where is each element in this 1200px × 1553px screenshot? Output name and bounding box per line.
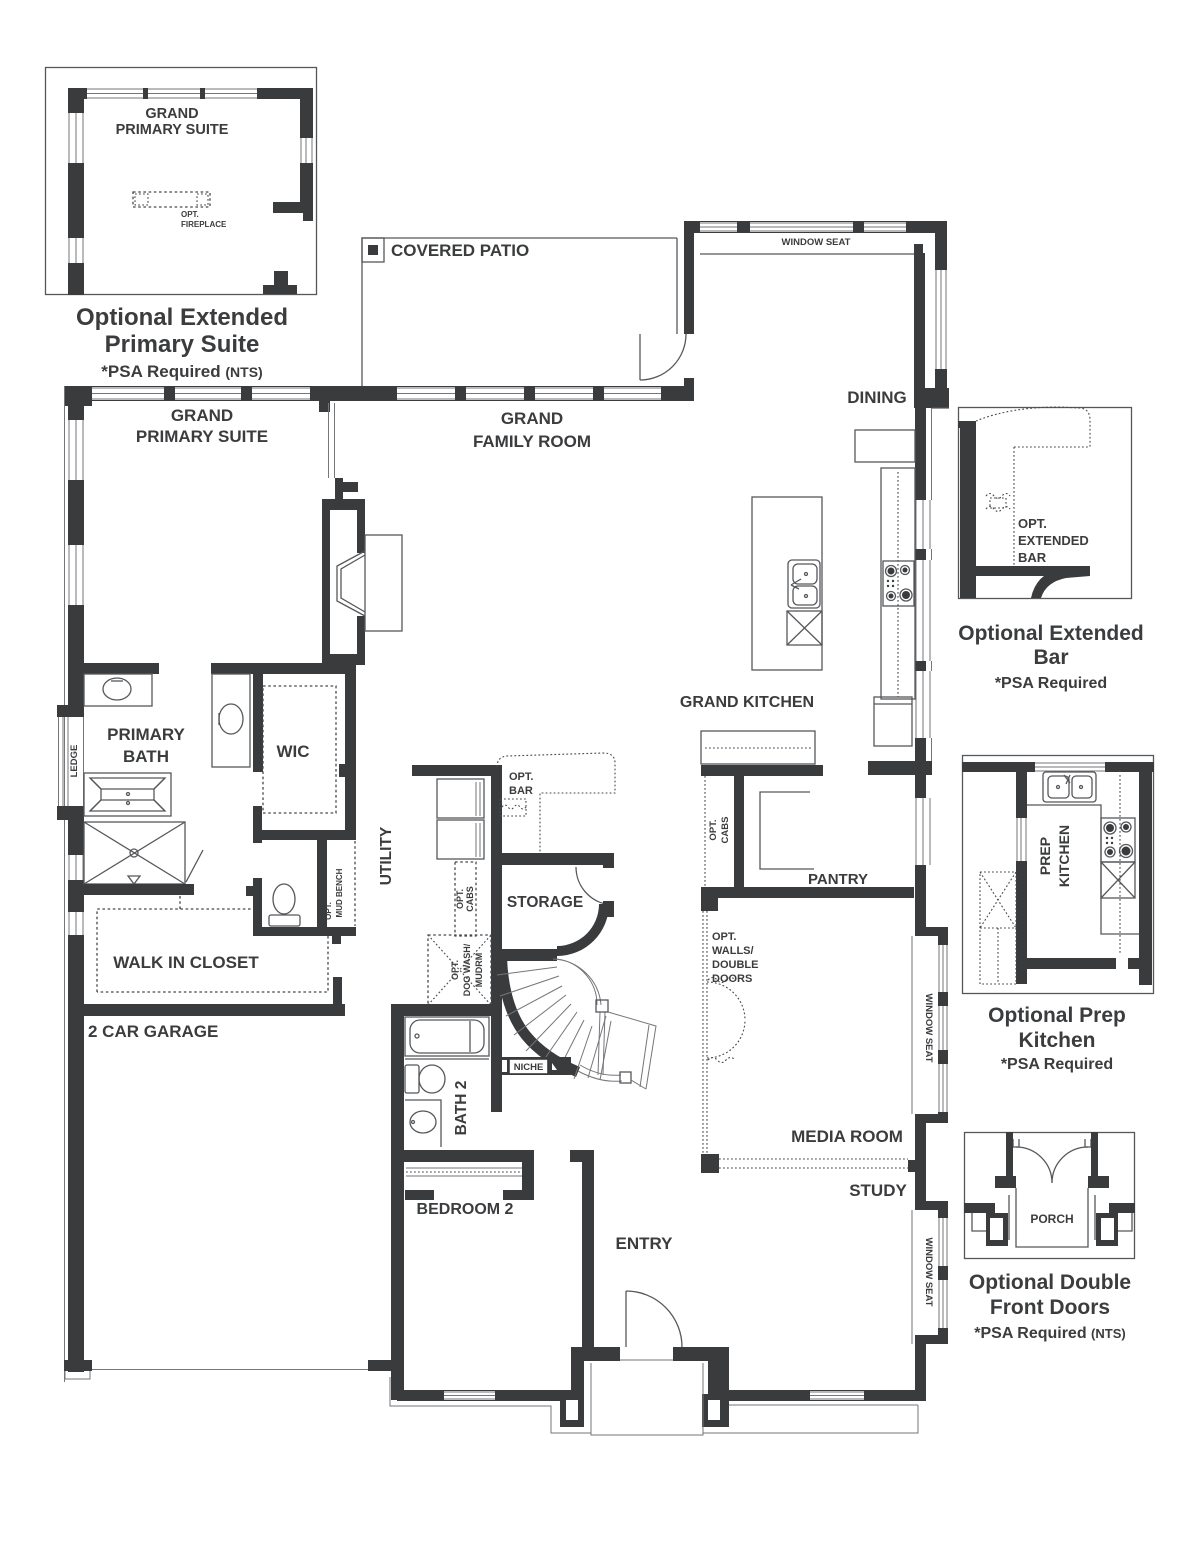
svg-text:Front Doors: Front Doors [990,1296,1110,1319]
svg-text:BAR: BAR [509,785,533,797]
svg-text:COVERED PATIO: COVERED PATIO [391,241,529,260]
svg-text:OPT.: OPT. [708,819,719,840]
svg-text:WINDOW SEAT: WINDOW SEAT [782,237,851,248]
svg-text:BEDROOM 2: BEDROOM 2 [417,1201,514,1218]
svg-text:Kitchen: Kitchen [1018,1029,1095,1052]
svg-text:FAMILY ROOM: FAMILY ROOM [473,432,591,451]
svg-text:STORAGE: STORAGE [507,894,583,911]
svg-text:UTILITY: UTILITY [378,826,395,885]
svg-text:OPT.: OPT. [455,889,465,909]
svg-text:DOG WASH/: DOG WASH/ [462,943,472,996]
svg-text:OPT.: OPT. [509,771,533,783]
svg-text:*PSA Required: *PSA Required [1001,1056,1113,1073]
svg-text:MUD BENCH: MUD BENCH [335,868,344,917]
svg-text:Primary Suite: Primary Suite [105,331,260,358]
svg-text:MUDRM: MUDRM [474,953,484,988]
svg-text:PANTRY: PANTRY [808,871,868,888]
svg-text:CABS: CABS [465,886,475,912]
svg-text:DOORS: DOORS [712,973,752,985]
svg-text:2 CAR GARAGE: 2 CAR GARAGE [88,1022,218,1041]
svg-text:GRAND: GRAND [501,409,563,428]
svg-text:WIC: WIC [276,742,309,761]
svg-text:PORCH: PORCH [1030,1212,1073,1226]
svg-text:GRAND KITCHEN: GRAND KITCHEN [680,694,814,711]
svg-text:NICHE: NICHE [514,1062,544,1073]
svg-text:WINDOW SEAT: WINDOW SEAT [923,1238,934,1307]
svg-text:*PSA Required (NTS): *PSA Required (NTS) [101,362,262,381]
svg-text:PRIMARY: PRIMARY [107,725,185,744]
svg-text:WINDOW SEAT: WINDOW SEAT [923,994,934,1063]
svg-text:GRAND: GRAND [145,106,198,122]
svg-text:CABS: CABS [720,817,731,844]
svg-text:Bar: Bar [1033,646,1068,669]
svg-text:BAR: BAR [1018,550,1047,565]
svg-text:LEDGE: LEDGE [69,745,80,778]
svg-text:OPT.: OPT. [324,902,333,920]
svg-text:BATH 2: BATH 2 [453,1081,470,1136]
svg-text:FIREPLACE: FIREPLACE [181,220,227,229]
svg-text:OPT.: OPT. [712,931,736,943]
svg-text:Optional Extended: Optional Extended [958,622,1144,645]
svg-text:STUDY: STUDY [849,1181,907,1200]
svg-text:Optional Double: Optional Double [969,1271,1131,1294]
svg-text:OPT.: OPT. [450,960,460,980]
svg-text:BATH: BATH [123,747,169,766]
svg-text:WALK IN CLOSET: WALK IN CLOSET [113,953,259,972]
svg-text:PREP: PREP [1037,837,1053,875]
svg-text:OPT.: OPT. [181,210,199,219]
svg-text:PRIMARY SUITE: PRIMARY SUITE [136,427,268,446]
svg-text:WALLS/: WALLS/ [712,945,754,957]
svg-text:Optional Prep: Optional Prep [988,1004,1126,1027]
svg-text:EXTENDED: EXTENDED [1018,533,1089,548]
svg-text:GRAND: GRAND [171,406,233,425]
svg-text:MEDIA ROOM: MEDIA ROOM [791,1127,903,1146]
svg-text:*PSA Required: *PSA Required [995,675,1107,692]
svg-text:KITCHEN: KITCHEN [1056,825,1072,887]
svg-text:ENTRY: ENTRY [616,1234,674,1253]
svg-text:DOUBLE: DOUBLE [712,959,758,971]
svg-text:*PSA Required (NTS): *PSA Required (NTS) [974,1325,1125,1342]
svg-text:DINING: DINING [847,388,907,407]
svg-text:PRIMARY SUITE: PRIMARY SUITE [116,122,229,138]
svg-text:OPT.: OPT. [1018,516,1047,531]
svg-text:Optional Extended: Optional Extended [76,304,288,331]
